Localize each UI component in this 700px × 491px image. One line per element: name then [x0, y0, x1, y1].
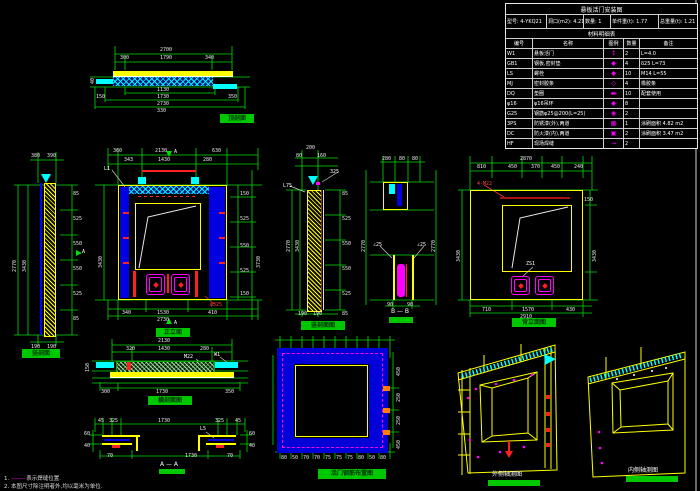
section-mark: A [82, 249, 85, 255]
legend-symbol: ◇ [604, 79, 624, 88]
cell-no: LS [506, 69, 533, 78]
legend-symbol: ↕ [604, 49, 624, 58]
cell-name: 密封胶条 [533, 79, 604, 88]
dim-text: 550 [73, 241, 82, 247]
d8-right-angle-leg [198, 435, 200, 451]
d3-anchor-left [138, 177, 146, 184]
d3-fan-divider [167, 274, 169, 293]
table-row: W1 悬板活门 ↕ 2 L=4.0 [506, 49, 697, 59]
cell-note [640, 139, 697, 148]
dim-text: 2730 [157, 101, 169, 107]
d5-title-bar [389, 317, 413, 323]
col-header-name: 名称 [533, 39, 604, 48]
dim-text: 70 [314, 455, 320, 461]
d2-door-leaf-line [40, 183, 42, 335]
leader-text: L5 [200, 426, 206, 432]
d5-node-top-outline [383, 182, 408, 210]
dim-text: 2770 [361, 240, 367, 252]
cell-no: G25 [506, 109, 533, 118]
dim-text: 45 [235, 418, 241, 424]
col-header-legend: 图例 [604, 39, 624, 48]
dim-text: 80 [281, 455, 287, 461]
dim-text: 150 [240, 291, 249, 297]
d8-title: A — A [160, 461, 178, 468]
dim-text: 80 [412, 156, 418, 162]
dim-text: 70 [227, 453, 233, 459]
d1-embed-left [96, 79, 113, 84]
d3-sill-post-right [195, 271, 198, 297]
dim-text: 3730 [256, 256, 262, 268]
dim-text: 2770 [12, 260, 18, 272]
cell-note: 涂刷面积 4.82 m2 [640, 119, 697, 128]
dim-text: 2770 [286, 240, 292, 252]
dim-text: 150 [85, 363, 91, 372]
cell-no: 3PS [506, 119, 533, 128]
d10-bolt-dots [467, 374, 534, 459]
cell-name: 钢板,密封垫 [533, 59, 604, 68]
dim-text: 90 [387, 302, 393, 308]
cell-no: DC [506, 129, 533, 138]
cell-note: 橡胶条 [640, 79, 697, 88]
note-line-2: 2. 本图尺寸除注明者外,均以毫米为单位. [4, 482, 103, 490]
dim-text: 1730 [185, 453, 197, 459]
d10-title: 外侧轴测图 [492, 471, 522, 478]
table-title: 悬板活门安装图 [506, 4, 697, 14]
d11-magenta-dots [598, 431, 604, 465]
col-header-qty: 数量 [624, 39, 640, 48]
dim-text: 450 [508, 164, 517, 170]
legend-symbol: ◆ [604, 59, 624, 68]
cell-qty: 2 [624, 129, 640, 138]
cell-note: L=4.0 [640, 49, 697, 58]
dim-text: 85 [342, 311, 348, 317]
dim-text: 430 [566, 307, 575, 313]
dim-text: 525 [342, 216, 351, 222]
dim-text: 150 [584, 197, 593, 203]
dim-text: 630 [212, 148, 221, 154]
cell-note: 涂刷面积 3.47 m2 [640, 129, 697, 138]
cell-qty: 10 [624, 89, 640, 98]
dim-text: 525 [342, 291, 351, 297]
d8-right-angle-top [198, 435, 236, 437]
table-info-unit-weight: 单件重(t): 1.77 [611, 15, 659, 28]
d7-red-mark [127, 362, 131, 370]
cell-no: GB1 [506, 59, 533, 68]
dim-text: 85 [73, 191, 79, 197]
cell-note [640, 109, 697, 118]
table-row: HF 现场焊缝 → 2 [506, 139, 697, 148]
dim-text: 550 [342, 266, 351, 272]
d8-left-angle-leg [136, 435, 138, 451]
dim-text: 450 [396, 367, 402, 376]
legend-symbol: ▦ [604, 119, 624, 128]
dim-text: 80 [399, 156, 405, 162]
d9-hinge-mark [383, 408, 390, 413]
dim-text: 350 [228, 94, 237, 100]
d4-seal-line [321, 190, 322, 310]
dim-text: 280 [203, 157, 212, 163]
dim-text: 60 [249, 431, 255, 437]
dim-text: 85 [342, 191, 348, 197]
dim-text: 200 [306, 145, 315, 151]
cell-qty: 2 [624, 109, 640, 118]
d9-hinge-mark [383, 430, 390, 435]
section-mark: A [174, 320, 177, 326]
d8-right-blue-strip [208, 439, 234, 441]
leader-text: ∠25 [417, 242, 426, 248]
dim-text: 150 [240, 191, 249, 197]
table-row: φ16 φ16吊环 ◆ 8 [506, 99, 697, 109]
d11-anchor-teeth [590, 355, 683, 380]
cell-qty: 8 [624, 99, 640, 108]
cell-no: φ16 [506, 99, 533, 108]
table-info-total-weight: 总重量(t): 1.21 [659, 15, 697, 28]
d4-title: 竖剖面图 [301, 321, 345, 330]
dim-text: 70 [107, 453, 113, 459]
d11-title-bar [626, 476, 678, 482]
dim-text: 300 [120, 55, 129, 61]
d2-wall-hatch [44, 183, 56, 337]
material-table: 悬板活门安装图 型号: 4-YKQ21 洞口(m2): 4.21 数量: 1 单… [505, 3, 698, 149]
dim-text: 525 [240, 216, 249, 222]
cell-name: 悬板活门 [533, 49, 604, 58]
d6-title: 背立面图 [512, 318, 556, 327]
leader-text: ZS1 [526, 261, 535, 267]
cell-name: 现场焊缝 [533, 139, 604, 148]
cell-note: 配套使用 [640, 89, 697, 98]
d1-concrete-hatch [113, 77, 213, 86]
dim-text: 2130 [155, 148, 167, 154]
dim-text: 350 [225, 389, 234, 395]
d3-leaf-outline [135, 203, 201, 270]
dim-text: 1530 [157, 310, 169, 316]
leader-text: ∠25 [373, 242, 382, 248]
d3-hinge-mark [123, 237, 129, 239]
table-subtitle: 材料明细表 [506, 29, 697, 38]
dim-text: 150 [96, 94, 105, 100]
dim-text: 1730 [157, 94, 169, 100]
dim-text: 300 [101, 389, 110, 395]
cell-no: HF [506, 139, 533, 148]
dim-text: 330 [157, 108, 166, 114]
cell-name: 防锈漆(外),两道 [533, 119, 604, 128]
d9-hinge-mark [383, 386, 390, 391]
d10-hinge-marks [546, 395, 550, 447]
d4-face-line [323, 190, 324, 310]
table-info-opening: 洞口(m2): 4.21 [547, 15, 584, 28]
legend-symbol: ◉ [604, 109, 624, 118]
dim-text: 40 [90, 78, 96, 84]
dim-text: 3430 [22, 260, 28, 272]
leader-text: L75 [283, 183, 292, 189]
cell-no: DQ [506, 89, 533, 98]
dim-text: 450 [551, 164, 560, 170]
table-row: GB1 钢板,密封垫 ◆ 4 δ25 L=73 [506, 59, 697, 69]
dim-text: 550 [240, 243, 249, 249]
dim-text: 1790 [160, 55, 172, 61]
d7-sill-plate [110, 372, 234, 378]
cell-note: δ25 L=73 [640, 59, 697, 68]
d1-title: 顶剖面 [220, 114, 254, 123]
d9-opening-outline [295, 365, 368, 437]
d1-embed-right [213, 84, 237, 89]
dim-text: 320 [126, 346, 135, 352]
cell-name: 垫圈 [533, 89, 604, 98]
dim-text: 525 [73, 291, 82, 297]
d6-top-red-line [500, 197, 570, 199]
cell-note: M14 L=55 [640, 69, 697, 78]
cell-name: 钢筋φ25@200(L=25) [533, 109, 604, 118]
dim-text: 85 [73, 316, 79, 322]
d3-sill-post-left [133, 271, 136, 297]
cell-name: φ16吊环 [533, 99, 604, 108]
d5-node-top-embed [389, 184, 395, 194]
cell-name: 防火漆(内),两道 [533, 129, 604, 138]
dim-text: 80 [358, 455, 364, 461]
cell-qty: 1 [624, 119, 640, 128]
dim-text: 525 [240, 268, 249, 274]
cell-qty: 4 [624, 79, 640, 88]
dim-text: 343 [124, 157, 133, 163]
dim-text: 550 [342, 241, 351, 247]
legend-symbol: ◆ [604, 69, 624, 78]
d8-left-blue-strip [104, 439, 130, 441]
d7-embed-left [96, 362, 114, 368]
d2-funnel-icon [41, 174, 51, 183]
d5-node-top-blue [397, 184, 402, 206]
leader-text: 325 [330, 169, 339, 175]
legend-symbol: → [604, 139, 624, 148]
d7-title: 横剖面图 [148, 396, 192, 405]
dim-text: 190 [298, 311, 307, 317]
d3-hinge-mark [219, 212, 225, 214]
dim-text: 60 [84, 431, 90, 437]
d3-vent-fan-right [171, 274, 190, 295]
table-row: LS 螺栓 ◆ 10 M14 L=55 [506, 69, 697, 79]
d5-red-line [406, 264, 407, 297]
dim-text: 2730 [157, 317, 169, 323]
cell-qty: 2 [624, 139, 640, 148]
dim-text: 50 [369, 455, 375, 461]
d5-title: B — B [391, 308, 409, 315]
d4-magenta-mark [316, 182, 320, 185]
d3-hinge-mark [219, 262, 225, 264]
dim-text: 40 [249, 443, 255, 449]
cell-no: MJ [506, 79, 533, 88]
dim-text: 75 [347, 455, 353, 461]
d3-blue-jamb-right [209, 187, 225, 298]
table-row: DC 防火漆(内),两道 ▣ 2 涂刷面积 3.47 m2 [506, 129, 697, 139]
legend-symbol: ◆ [604, 99, 624, 108]
dim-text: 250 [396, 393, 402, 402]
dim-text: 380 [31, 153, 40, 159]
d3-hinge-mark [123, 212, 129, 214]
dim-text: 340 [122, 310, 131, 316]
d10-title-bar [488, 480, 540, 486]
dim-text: 550 [73, 266, 82, 272]
leader-text: M22 [184, 354, 193, 360]
d4-wall-hatch [307, 190, 322, 312]
dim-text: 2910 [520, 314, 532, 320]
dim-text: 2770 [431, 240, 437, 252]
dim-text: 75 [336, 455, 342, 461]
leader-text: L1 [104, 166, 110, 172]
dim-text: 1430 [158, 346, 170, 352]
d8-left-angle-top [102, 435, 140, 437]
d6-vent-fan-right [535, 276, 554, 295]
cell-qty: 2 [624, 49, 640, 58]
cell-qty: 4 [624, 59, 640, 68]
cell-name: 螺栓 [533, 69, 604, 78]
dim-text: 3430 [592, 250, 598, 262]
d2-title: 竖剖面 [22, 349, 60, 358]
d3-hinge-mark [219, 237, 225, 239]
col-header-note: 备注 [640, 39, 697, 48]
d10-isometric-exterior [458, 344, 557, 475]
dim-text: 80 [380, 455, 386, 461]
dim-text: 710 [482, 307, 491, 313]
col-header-no: 编号 [506, 39, 533, 48]
d3-vent-fan-left [146, 274, 165, 295]
dim-text: 75 [325, 455, 331, 461]
dim-text: 45 [98, 418, 104, 424]
note-line-1: 1. ——— 表示焊缝位置. [4, 474, 61, 482]
legend-symbol: ▬ [604, 89, 624, 98]
d3-anchor-right [191, 177, 199, 184]
dim-text: 1130 [157, 87, 169, 93]
dim-text: 90 [407, 302, 413, 308]
dim-text: 360 [113, 148, 122, 154]
d11-isometric-interior [588, 347, 685, 477]
cell-qty: 10 [624, 69, 640, 78]
d10-anchor-teeth [462, 349, 553, 376]
section-mark: A [174, 149, 177, 155]
d3-top-red-line [142, 170, 196, 172]
dim-text: 450 [396, 440, 402, 449]
dim-text: 280 [382, 156, 391, 162]
dim-text: 340 [205, 55, 214, 61]
d8-right-red-mark [216, 445, 224, 448]
dim-text: 525 [73, 216, 82, 222]
d3-title: 正立面 [156, 328, 190, 337]
cad-sheet: 顶剖面 竖剖面 正立面 竖剖面图 B — B 背立面图 横剖面图 A — A 活… [0, 0, 700, 491]
dim-text: 1430 [158, 157, 170, 163]
dim-text: 810 [477, 164, 486, 170]
dim-text: 160 [317, 153, 326, 159]
dim-text: 410 [208, 310, 217, 316]
dim-text: 1570 [522, 307, 534, 313]
d3-hinge-mark [123, 262, 129, 264]
cell-no: W1 [506, 49, 533, 58]
table-row: DQ 垫圈 ▬ 10 配套使用 [506, 89, 697, 99]
dim-text: 240 [574, 164, 583, 170]
dim-text: 80 [296, 153, 302, 159]
dim-text: 2700 [160, 47, 172, 53]
dim-text: 325 [109, 418, 118, 424]
cell-note [640, 99, 697, 108]
table-info-model: 型号: 4-YKQ21 [506, 15, 547, 28]
d10-red-arrow [505, 451, 513, 458]
dim-text: 370 [531, 164, 540, 170]
dim-text: 250 [396, 416, 402, 425]
dim-text: 190 [313, 311, 322, 317]
d8-left-red-mark [112, 445, 120, 448]
d5-gasket [397, 264, 405, 297]
dim-text: 190 [31, 344, 40, 350]
d6-leaf-outline [502, 205, 572, 272]
d8-title-bar [159, 469, 185, 474]
red-note: 4-M22 [477, 181, 492, 187]
d7-embed-right [214, 362, 238, 368]
dim-text: 2130 [158, 338, 170, 344]
d3-blue-jamb-left [120, 187, 129, 298]
dim-text: 3430 [98, 256, 104, 268]
dim-text: 40 [84, 443, 90, 449]
table-row: G25 钢筋φ25@200(L=25) ◉ 2 [506, 109, 697, 119]
dim-text: 3430 [456, 250, 462, 262]
dim-text: 390 [47, 153, 56, 159]
red-note: φ325 [210, 302, 222, 308]
dim-text: 70 [303, 455, 309, 461]
dim-text: 50 [292, 455, 298, 461]
dim-text: 325 [215, 418, 224, 424]
dim-text: 190 [47, 344, 56, 350]
dim-text: 3430 [295, 240, 301, 252]
table-row: 3PS 防锈漆(外),两道 ▦ 1 涂刷面积 4.82 m2 [506, 119, 697, 129]
table-info-qty: 数量: 1 [584, 15, 611, 28]
dim-text: 2870 [520, 156, 532, 162]
d6-vent-fan-left [511, 276, 530, 295]
leader-text: W1 [214, 352, 220, 358]
d10-cyan-arrow [544, 354, 556, 365]
dim-text: 1730 [156, 389, 168, 395]
dim-text: 1730 [158, 418, 170, 424]
legend-symbol: ▣ [604, 129, 624, 138]
table-row: MJ 密封胶条 ◇ 4 橡胶条 [506, 79, 697, 89]
d11-title: 内侧轴测图 [628, 467, 658, 474]
leader-lines-red [205, 185, 504, 304]
d9-title: 活门钢筋布置图 [318, 469, 386, 479]
dim-text: 280 [200, 346, 209, 352]
